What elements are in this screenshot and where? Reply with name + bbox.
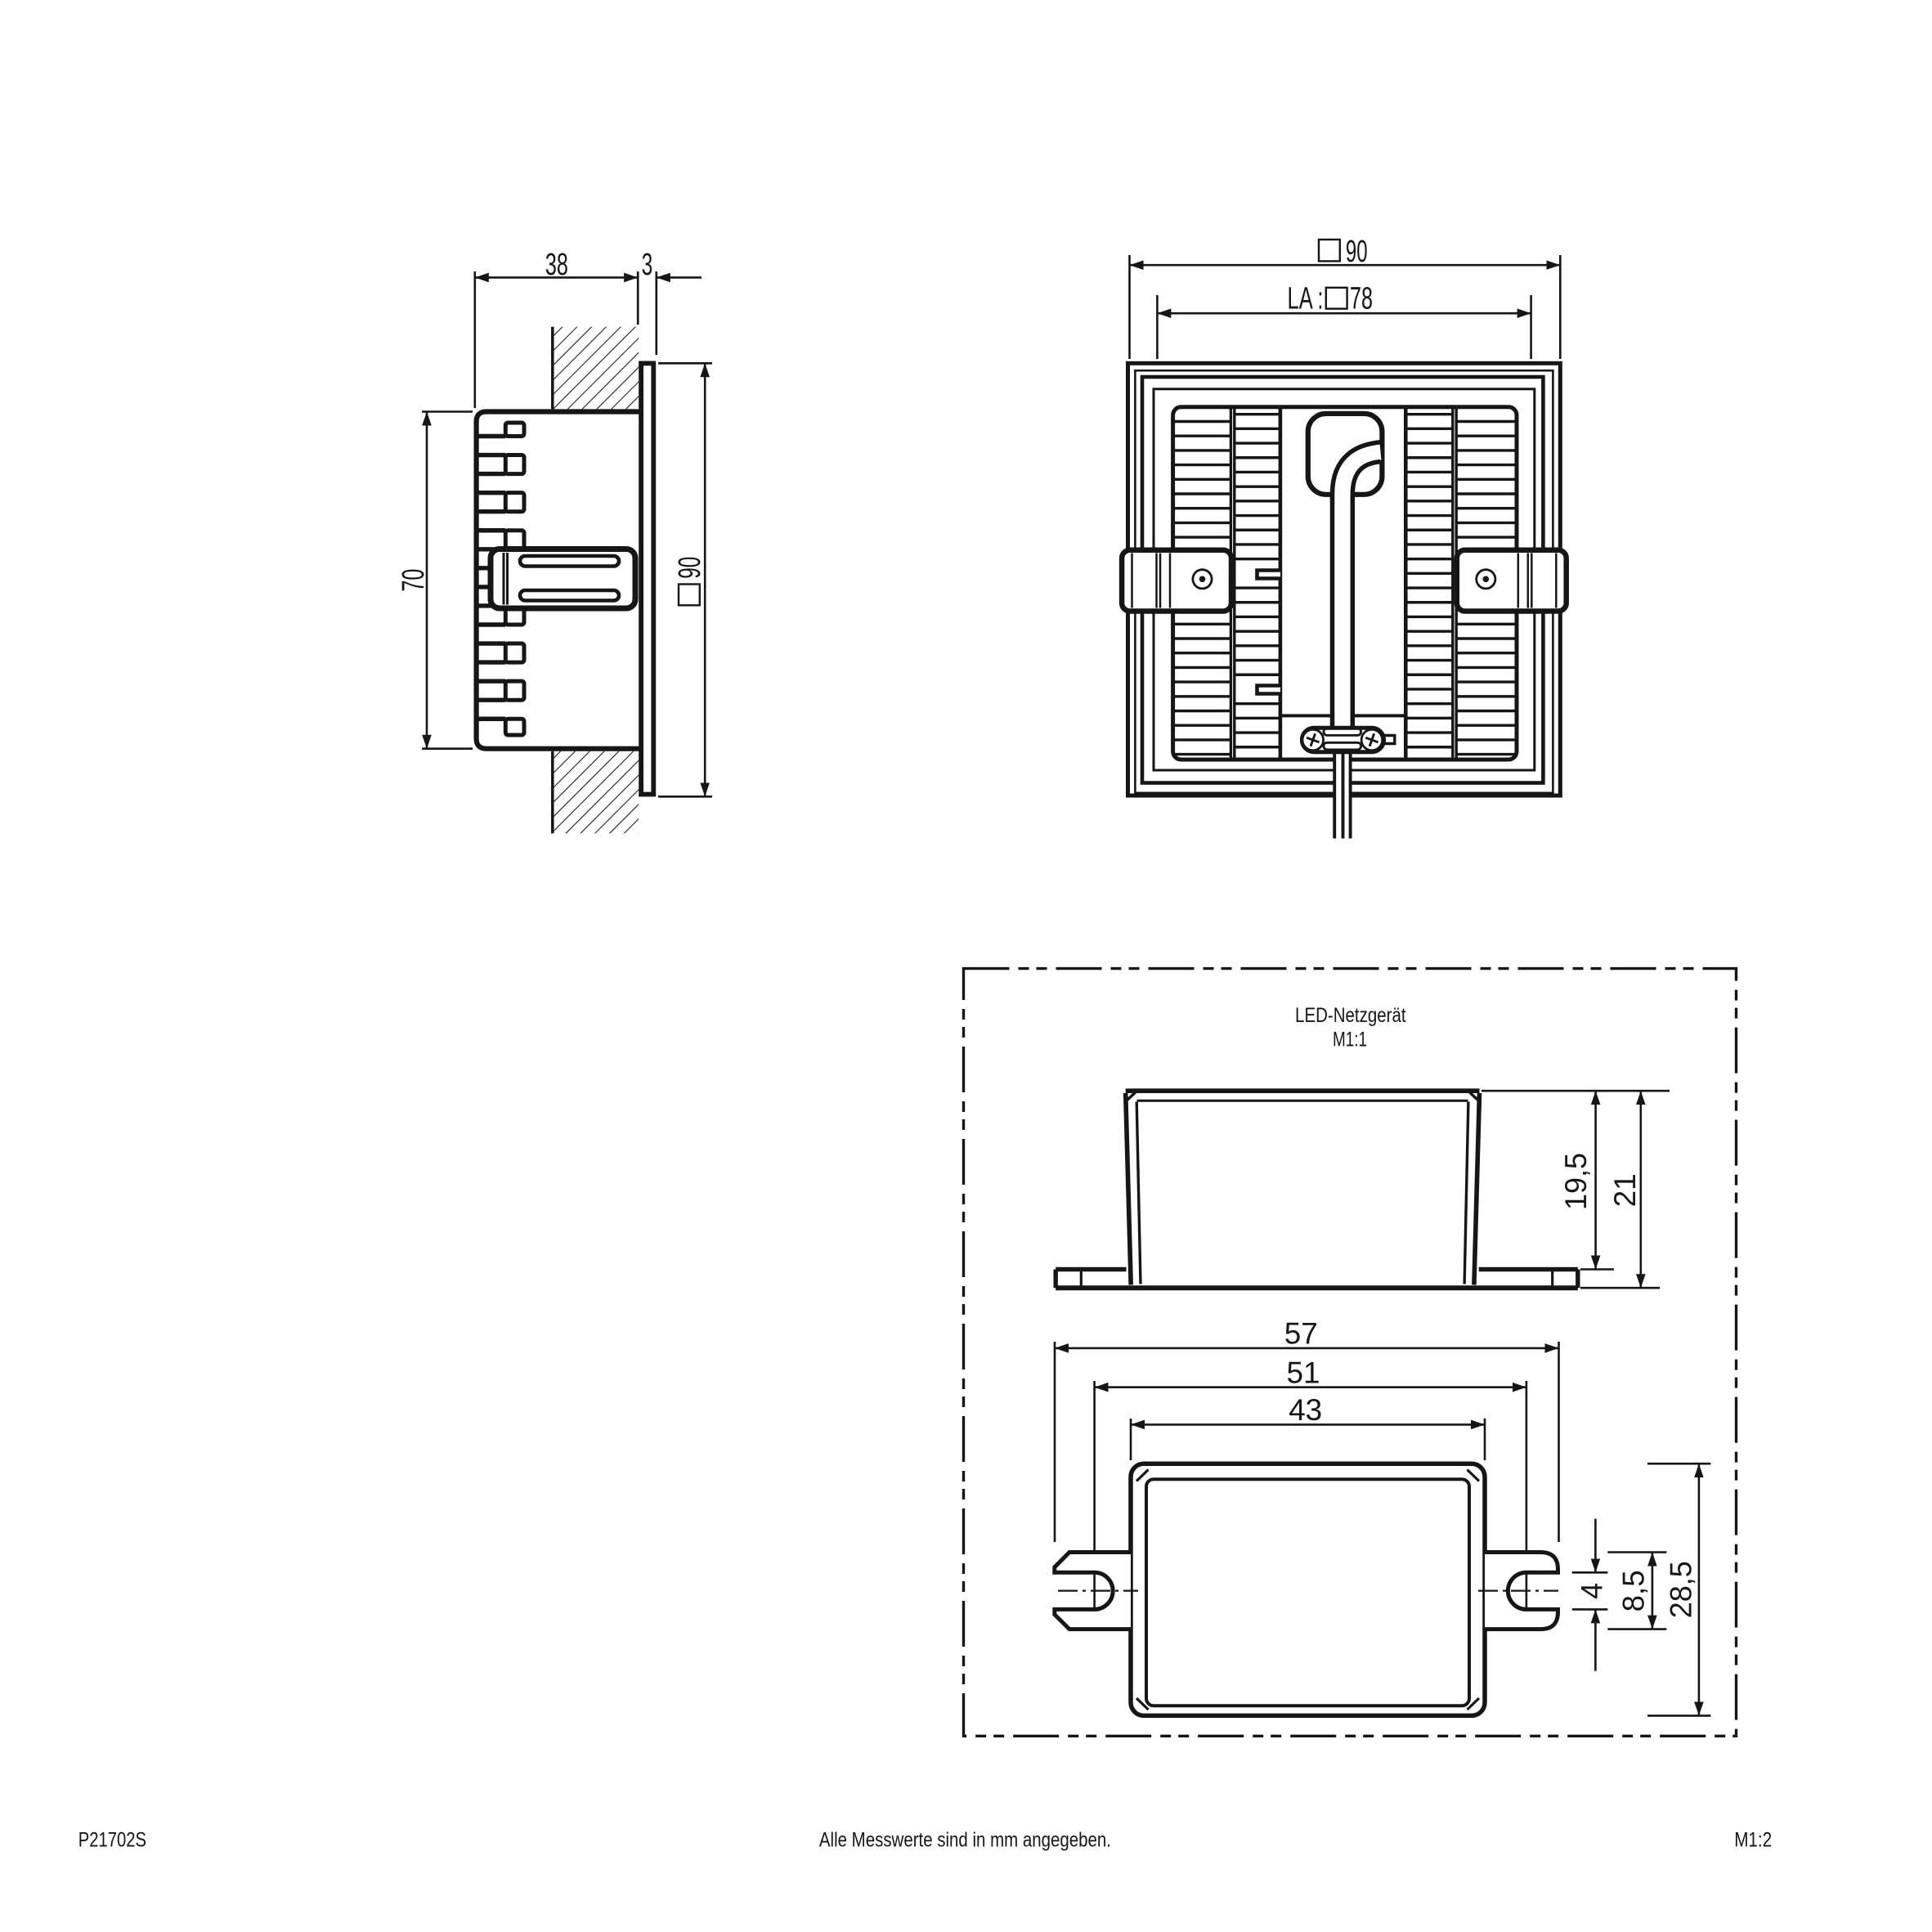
svg-text:43: 43 <box>1289 1393 1322 1427</box>
svg-text:19,5: 19,5 <box>1559 1153 1593 1210</box>
svg-text:90: 90 <box>1346 235 1368 269</box>
svg-text:57: 57 <box>1284 1317 1318 1351</box>
svg-text:LED-Netzgerät: LED-Netzgerät <box>1295 1004 1406 1027</box>
svg-text:P21702S: P21702S <box>78 1828 146 1851</box>
svg-text:21: 21 <box>1608 1173 1642 1207</box>
svg-text:Alle Messwerte sind in mm ange: Alle Messwerte sind in mm angegeben. <box>819 1828 1111 1851</box>
svg-text:M1:1: M1:1 <box>1333 1028 1367 1051</box>
svg-text:LA :: LA : <box>1288 282 1324 316</box>
svg-text:M1:2: M1:2 <box>1734 1828 1772 1851</box>
svg-text:90: 90 <box>673 557 707 579</box>
svg-text:70: 70 <box>397 569 431 592</box>
svg-text:8,5: 8,5 <box>1617 1570 1651 1611</box>
svg-text:38: 38 <box>545 248 568 282</box>
svg-text:3: 3 <box>642 248 653 282</box>
svg-text:51: 51 <box>1287 1356 1320 1389</box>
svg-text:78: 78 <box>1350 282 1373 316</box>
svg-text:28,5: 28,5 <box>1665 1561 1698 1618</box>
svg-text:4: 4 <box>1576 1583 1609 1599</box>
